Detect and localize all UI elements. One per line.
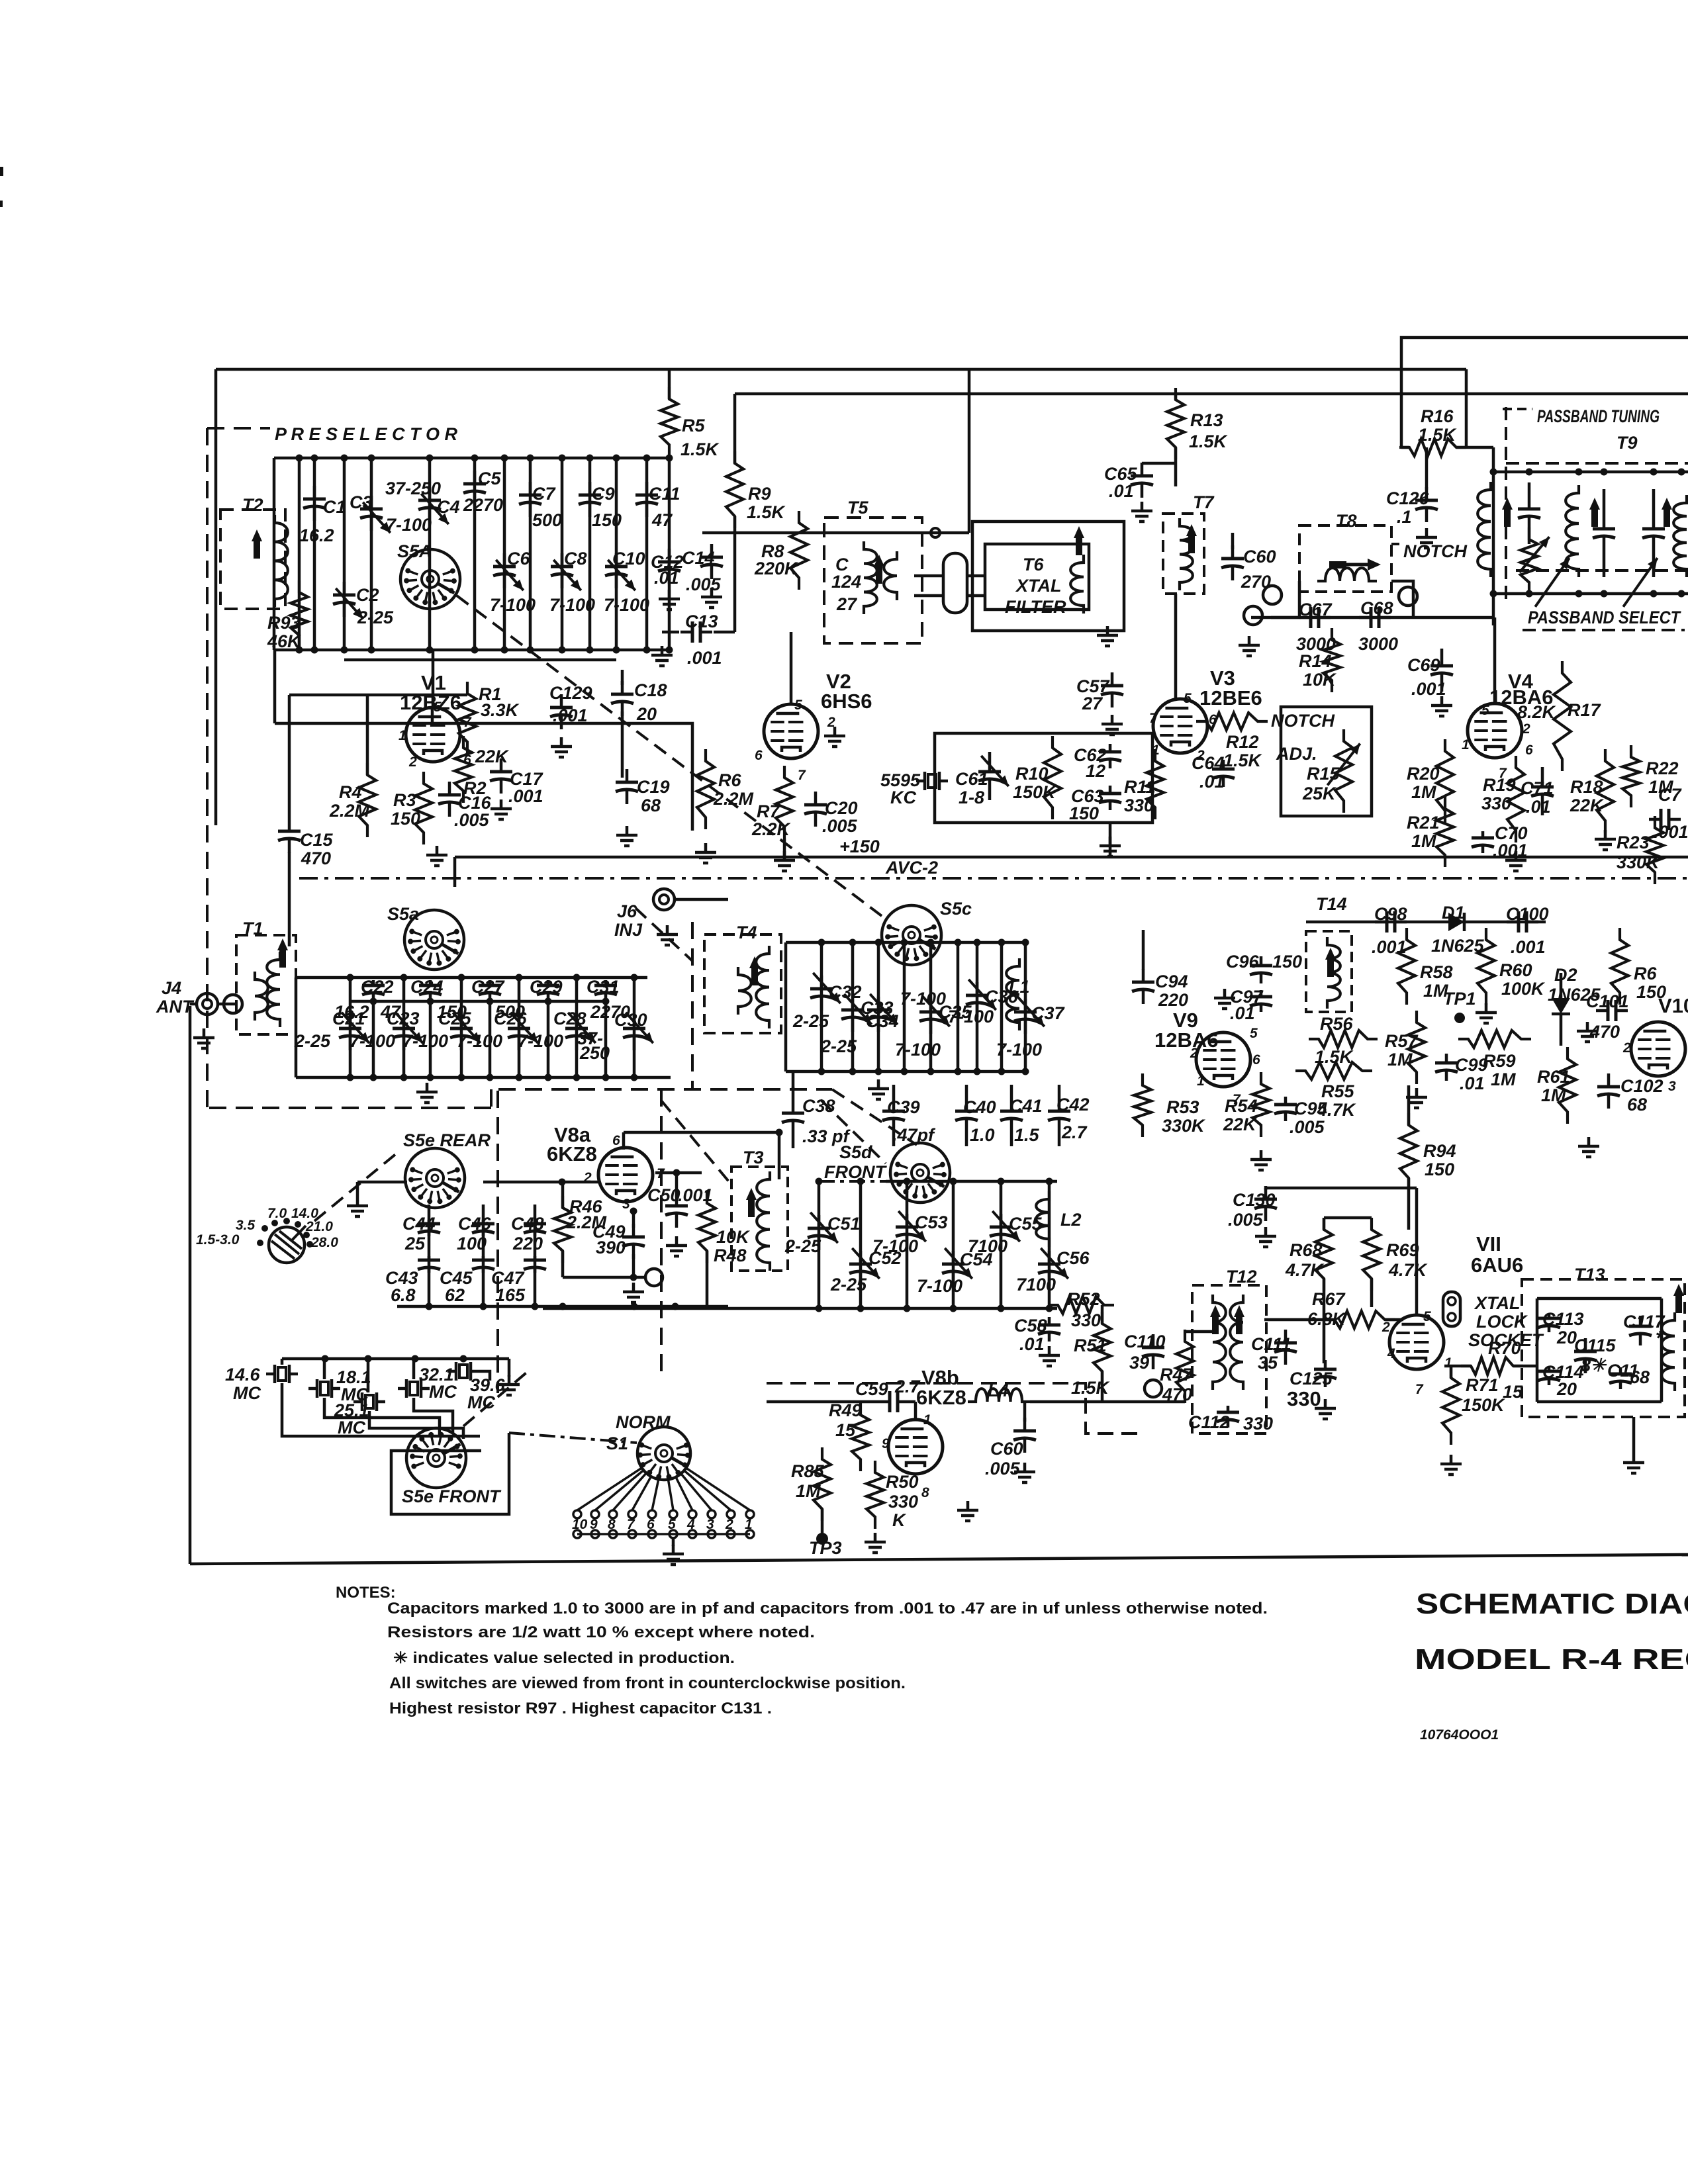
svg-text:1.5K: 1.5K xyxy=(680,439,720,459)
svg-text:R70: R70 xyxy=(1488,1338,1521,1358)
svg-text:R57: R57 xyxy=(1385,1031,1419,1051)
svg-text:C39: C39 xyxy=(887,1097,920,1117)
svg-text:FRONT: FRONT xyxy=(824,1162,887,1182)
svg-text:C19: C19 xyxy=(637,777,670,797)
svg-text:C28: C28 xyxy=(553,1009,586,1028)
svg-text:KC: KC xyxy=(890,788,916,807)
svg-text:.005: .005 xyxy=(1228,1210,1264,1230)
svg-text:2.2M: 2.2M xyxy=(713,789,754,809)
svg-text:Capacitors marked 1.0 to 3: Capacitors marked 1.0 to 3000 are in pf … xyxy=(387,1600,1268,1617)
svg-text:C18: C18 xyxy=(634,680,667,700)
svg-text:21.0: 21.0 xyxy=(305,1219,333,1234)
svg-text:15: 15 xyxy=(1503,1382,1523,1402)
svg-text:C15: C15 xyxy=(300,830,334,850)
svg-text:C32: C32 xyxy=(829,982,862,1002)
svg-text:Resistors are 1/2 watt 1: Resistors are 1/2 watt 10 % except where… xyxy=(387,1623,815,1641)
svg-text:R9: R9 xyxy=(748,484,771,504)
svg-text:330K: 330K xyxy=(1162,1116,1206,1136)
svg-text:3: 3 xyxy=(1668,1079,1676,1094)
svg-text:.001: .001 xyxy=(1654,822,1688,842)
svg-text:C13: C13 xyxy=(685,612,718,631)
svg-text:C102: C102 xyxy=(1620,1076,1664,1096)
svg-text:3: 3 xyxy=(706,1517,714,1532)
svg-text:1.5K: 1.5K xyxy=(1418,425,1458,445)
svg-text:Highest resistor R97 . H: Highest resistor R97 . Highest capacitor… xyxy=(389,1700,772,1717)
svg-text:500: 500 xyxy=(532,510,562,530)
svg-text:C110: C110 xyxy=(1124,1332,1166,1351)
svg-text:7.0: 7.0 xyxy=(267,1206,287,1221)
svg-text:T9: T9 xyxy=(1617,433,1638,453)
svg-text:330: 330 xyxy=(1243,1414,1273,1433)
svg-text:5: 5 xyxy=(794,698,802,713)
svg-text:R53: R53 xyxy=(1166,1097,1199,1117)
svg-text:C51: C51 xyxy=(827,1214,861,1234)
svg-text:R3: R3 xyxy=(393,790,416,810)
svg-text:5: 5 xyxy=(434,700,442,715)
svg-text:12BE6: 12BE6 xyxy=(1199,686,1262,709)
svg-text:C9: C9 xyxy=(592,484,615,504)
svg-text:150: 150 xyxy=(391,809,420,829)
svg-text:D1: D1 xyxy=(1442,903,1465,923)
svg-text:R85: R85 xyxy=(791,1461,825,1481)
svg-text:MC: MC xyxy=(338,1418,365,1437)
svg-text:6.8: 6.8 xyxy=(391,1285,416,1305)
svg-text:J6: J6 xyxy=(617,901,637,921)
svg-text:390: 390 xyxy=(596,1238,626,1257)
svg-text:C4: C4 xyxy=(437,497,460,517)
svg-text:100K: 100K xyxy=(1501,979,1546,999)
svg-text:.1: .1 xyxy=(1397,507,1412,527)
svg-text:MODEL R-4 RECEIVER: MODEL R-4 RECEIVER xyxy=(1415,1643,1688,1676)
svg-text:✳ indicates value selected: ✳ indicates value selected in production… xyxy=(393,1649,735,1667)
svg-text:12BA6: 12BA6 xyxy=(1154,1028,1219,1052)
svg-text:330K: 330K xyxy=(1617,852,1661,872)
svg-text:C6: C6 xyxy=(507,549,530,569)
svg-text:R94: R94 xyxy=(1423,1141,1456,1161)
svg-text:R58: R58 xyxy=(1420,962,1453,982)
svg-text:7-100: 7-100 xyxy=(604,595,649,615)
svg-text:3000: 3000 xyxy=(1358,634,1398,654)
svg-text:C48: C48 xyxy=(511,1214,544,1234)
svg-text:XTAL: XTAL xyxy=(1015,576,1062,596)
svg-text:3: 3 xyxy=(622,1197,630,1212)
svg-text:All switches are viewed fr: All switches are viewed from front in co… xyxy=(389,1674,906,1692)
svg-text:3.3K: 3.3K xyxy=(481,700,520,720)
svg-text:2-25: 2-25 xyxy=(357,608,394,627)
svg-text:S5A: S5A xyxy=(397,541,432,561)
svg-text:4.7K: 4.7K xyxy=(1388,1260,1429,1280)
svg-text:4: 4 xyxy=(1387,1346,1395,1361)
svg-text:R61: R61 xyxy=(1537,1067,1570,1087)
svg-text:C37: C37 xyxy=(1031,1003,1066,1023)
svg-text:1: 1 xyxy=(399,728,406,743)
svg-text:TP3: TP3 xyxy=(809,1538,842,1558)
svg-text:S5c: S5c xyxy=(940,899,972,919)
svg-text:7-100: 7-100 xyxy=(490,595,536,615)
svg-text:2: 2 xyxy=(1522,721,1530,737)
svg-text:25K: 25K xyxy=(1302,784,1337,803)
svg-text:R47: R47 xyxy=(1160,1365,1194,1385)
svg-text:20: 20 xyxy=(1556,1379,1577,1399)
svg-text:S5e FRONT: S5e FRONT xyxy=(402,1486,502,1506)
svg-text:10K: 10K xyxy=(716,1227,751,1247)
svg-text:220: 220 xyxy=(1158,990,1188,1010)
svg-text:R69: R69 xyxy=(1386,1240,1419,1260)
svg-text:V10: V10 xyxy=(1658,994,1688,1017)
svg-text:.005: .005 xyxy=(1289,1117,1325,1137)
svg-text:150: 150 xyxy=(1425,1160,1454,1179)
svg-text:SCHEMATIC DIAGRAM: SCHEMATIC DIAGRAM xyxy=(1416,1588,1688,1620)
svg-text:1M: 1M xyxy=(796,1481,821,1501)
svg-text:6: 6 xyxy=(647,1517,655,1532)
svg-text:+150: +150 xyxy=(839,837,880,856)
svg-text:R56: R56 xyxy=(1320,1014,1354,1034)
svg-text:R5: R5 xyxy=(682,416,705,435)
svg-text:C2: C2 xyxy=(356,585,379,605)
svg-text:150: 150 xyxy=(1069,803,1099,823)
svg-text:R49: R49 xyxy=(829,1400,862,1420)
svg-text:T14: T14 xyxy=(1316,894,1347,914)
svg-text:T5: T5 xyxy=(847,498,868,518)
svg-text:.001: .001 xyxy=(1411,679,1446,699)
svg-text:C34: C34 xyxy=(866,1011,899,1031)
svg-text:7-100: 7-100 xyxy=(549,595,595,615)
svg-text:.005: .005 xyxy=(686,574,722,594)
svg-text:28.0: 28.0 xyxy=(310,1235,338,1250)
svg-text:T12: T12 xyxy=(1226,1267,1257,1287)
svg-text:10764OOO1: 10764OOO1 xyxy=(1420,1727,1499,1743)
svg-text:C11: C11 xyxy=(649,484,680,504)
svg-text:T8: T8 xyxy=(1336,511,1357,531)
svg-text:C20: C20 xyxy=(825,798,858,818)
svg-text:5: 5 xyxy=(1481,703,1489,718)
svg-text:165: 165 xyxy=(495,1285,526,1305)
svg-text:C10: C10 xyxy=(612,549,645,569)
svg-text:C100: C100 xyxy=(1506,904,1549,924)
svg-text:2-25: 2-25 xyxy=(830,1275,867,1295)
svg-text:7-100: 7-100 xyxy=(518,1031,563,1051)
svg-text:1M: 1M xyxy=(1491,1069,1516,1089)
svg-text:.01: .01 xyxy=(654,568,679,588)
svg-text:R14: R14 xyxy=(1299,651,1332,671)
svg-text:C38: C38 xyxy=(802,1096,835,1116)
svg-text:R11: R11 xyxy=(1124,777,1156,797)
svg-text:2: 2 xyxy=(1382,1320,1390,1335)
svg-text:R50: R50 xyxy=(886,1472,919,1492)
svg-text:R52: R52 xyxy=(1067,1289,1100,1309)
svg-text:MC: MC xyxy=(429,1382,457,1402)
svg-text:1-8: 1-8 xyxy=(959,788,984,807)
svg-text:35: 35 xyxy=(1258,1353,1278,1373)
svg-text:5: 5 xyxy=(1250,1026,1258,1041)
svg-text:330: 330 xyxy=(1481,794,1511,813)
svg-text:R20: R20 xyxy=(1407,764,1440,784)
svg-text:C113: C113 xyxy=(1542,1309,1584,1329)
svg-text:C44: C44 xyxy=(402,1214,436,1234)
svg-text:1: 1 xyxy=(745,1517,753,1532)
svg-text:C94: C94 xyxy=(1155,972,1188,991)
svg-text:27: 27 xyxy=(836,594,858,614)
svg-text:2.7: 2.7 xyxy=(894,1377,921,1396)
svg-text:NOTCH: NOTCH xyxy=(1271,711,1335,731)
svg-text:150: 150 xyxy=(1272,952,1302,972)
svg-text:5: 5 xyxy=(1423,1309,1431,1324)
svg-text:6KZ8: 6KZ8 xyxy=(547,1142,597,1165)
svg-text:.01: .01 xyxy=(1526,797,1551,817)
svg-text:R55: R55 xyxy=(1321,1081,1355,1101)
svg-text:22K: 22K xyxy=(1570,796,1605,815)
svg-text:C101: C101 xyxy=(1586,991,1629,1011)
svg-text:NOTES:: NOTES: xyxy=(336,1584,396,1602)
svg-text:.001: .001 xyxy=(1511,937,1546,957)
svg-text:22K: 22K xyxy=(1223,1115,1258,1134)
svg-text:S5e REAR: S5e REAR xyxy=(403,1130,491,1150)
svg-text:1: 1 xyxy=(1462,737,1470,752)
svg-text:10K: 10K xyxy=(1303,670,1337,690)
svg-text:C54: C54 xyxy=(960,1250,993,1269)
svg-text:C26: C26 xyxy=(494,1009,528,1028)
svg-text:7-100: 7-100 xyxy=(386,515,432,535)
svg-text:.001: .001 xyxy=(687,648,722,668)
svg-text:.47pf: .47pf xyxy=(892,1125,936,1145)
svg-text:3.5: 3.5 xyxy=(236,1218,256,1233)
svg-text:MC: MC xyxy=(467,1392,495,1412)
svg-text:R59: R59 xyxy=(1483,1051,1516,1071)
svg-text:C42: C42 xyxy=(1056,1095,1090,1115)
svg-text:470: 470 xyxy=(301,848,331,868)
svg-text:C30: C30 xyxy=(614,1010,647,1030)
svg-text:.01: .01 xyxy=(1019,1334,1045,1354)
svg-text:C67: C67 xyxy=(1299,600,1333,619)
svg-text:100: 100 xyxy=(457,1234,487,1253)
svg-text:4: 4 xyxy=(686,1517,695,1532)
svg-text:9: 9 xyxy=(882,1436,890,1451)
svg-text:T13: T13 xyxy=(1574,1265,1605,1285)
svg-text:C115: C115 xyxy=(1574,1336,1617,1355)
svg-text:124: 124 xyxy=(831,572,861,592)
svg-text:8: 8 xyxy=(608,1517,616,1532)
svg-text:.001: .001 xyxy=(508,786,543,806)
svg-text:T7: T7 xyxy=(1193,492,1215,512)
svg-text:7100: 7100 xyxy=(1016,1275,1056,1295)
svg-text:14.6: 14.6 xyxy=(225,1365,261,1385)
svg-text:7-100: 7-100 xyxy=(948,1007,994,1026)
svg-text:.005: .005 xyxy=(822,816,858,836)
svg-text:R68: R68 xyxy=(1289,1240,1323,1260)
svg-text:4.7K: 4.7K xyxy=(1317,1100,1357,1120)
svg-text:C14: C14 xyxy=(682,548,715,568)
svg-text:C1: C1 xyxy=(323,497,346,517)
svg-text:2-25: 2-25 xyxy=(820,1036,857,1056)
svg-text:D2: D2 xyxy=(1554,965,1577,985)
svg-text:R4: R4 xyxy=(339,782,362,802)
svg-text:220: 220 xyxy=(512,1234,543,1253)
svg-text:1: 1 xyxy=(923,1412,931,1428)
svg-text:R22: R22 xyxy=(1646,758,1679,778)
svg-text:FILTER: FILTER xyxy=(1005,597,1066,617)
svg-text:INJ: INJ xyxy=(614,920,643,940)
svg-text:68: 68 xyxy=(641,796,661,815)
svg-text:20: 20 xyxy=(636,704,657,724)
svg-text:C52: C52 xyxy=(868,1248,902,1268)
svg-text:2-25: 2-25 xyxy=(784,1236,821,1256)
svg-text:68: 68 xyxy=(1627,1095,1647,1115)
svg-text:R16: R16 xyxy=(1421,406,1454,426)
svg-text:R17: R17 xyxy=(1568,700,1602,720)
svg-text:39: 39 xyxy=(1129,1353,1149,1373)
svg-text:R6: R6 xyxy=(1634,964,1657,983)
svg-text:1M: 1M xyxy=(1541,1085,1566,1105)
svg-text:1.5K: 1.5K xyxy=(1189,432,1229,451)
svg-text:C112: C112 xyxy=(1188,1412,1230,1432)
svg-text:C71: C71 xyxy=(1521,778,1554,798)
svg-text:12: 12 xyxy=(1086,761,1105,781)
svg-text:R54: R54 xyxy=(1225,1096,1258,1116)
svg-text:R10: R10 xyxy=(1015,764,1049,784)
svg-text:C130: C130 xyxy=(1233,1190,1276,1210)
svg-text:S5d: S5d xyxy=(839,1142,872,1162)
svg-text:330: 330 xyxy=(1124,796,1154,815)
svg-text:C58: C58 xyxy=(1014,1316,1047,1336)
svg-text:C22: C22 xyxy=(361,977,394,997)
svg-text:C56: C56 xyxy=(1056,1248,1090,1268)
svg-text:5: 5 xyxy=(1184,691,1192,706)
svg-text:R67: R67 xyxy=(1312,1289,1346,1309)
svg-text:2.2M: 2.2M xyxy=(329,801,370,821)
svg-text:7-100: 7-100 xyxy=(350,1031,395,1051)
svg-text:C31: C31 xyxy=(586,977,620,997)
svg-text:1.5K: 1.5K xyxy=(1071,1378,1111,1398)
svg-text:C61: C61 xyxy=(955,769,988,789)
svg-text:1.5: 1.5 xyxy=(1014,1125,1040,1145)
svg-text:C21: C21 xyxy=(332,1009,365,1028)
svg-text:C126: C126 xyxy=(1386,488,1430,508)
svg-text:R60: R60 xyxy=(1499,960,1532,980)
svg-text:250: 250 xyxy=(579,1043,610,1063)
svg-text:VII: VII xyxy=(1476,1232,1501,1255)
svg-text:R18: R18 xyxy=(1570,777,1603,797)
svg-text:25: 25 xyxy=(404,1234,426,1253)
svg-text:.001: .001 xyxy=(1493,841,1528,860)
svg-text:ADJ.: ADJ. xyxy=(1276,744,1317,764)
svg-text:P R E S E L E C T O R: P R E S E L E C T O R xyxy=(275,424,458,444)
svg-text:150K: 150K xyxy=(1013,782,1057,802)
svg-text:C68: C68 xyxy=(1360,598,1393,618)
svg-text:7-100: 7-100 xyxy=(917,1276,962,1296)
svg-text:37-250: 37-250 xyxy=(385,478,441,498)
svg-text:PASSBAND TUNING: PASSBAND TUNING xyxy=(1537,406,1660,426)
svg-text:.01: .01 xyxy=(1109,481,1134,501)
svg-text:.01: .01 xyxy=(1460,1073,1485,1093)
svg-text:46K: 46K xyxy=(267,631,302,651)
svg-text:R7: R7 xyxy=(757,801,780,821)
svg-text:8✳: 8✳ xyxy=(1581,1355,1607,1375)
svg-text:7-100: 7-100 xyxy=(996,1040,1042,1060)
svg-text:K: K xyxy=(892,1510,907,1530)
svg-text:2: 2 xyxy=(725,1517,733,1532)
svg-text:C8: C8 xyxy=(564,549,587,569)
svg-text:2270: 2270 xyxy=(463,495,503,515)
svg-text:R93: R93 xyxy=(267,613,301,633)
svg-text:7: 7 xyxy=(1149,711,1158,726)
svg-text:6HS6: 6HS6 xyxy=(821,690,872,713)
svg-text:R48: R48 xyxy=(714,1246,747,1265)
svg-text:C23: C23 xyxy=(387,1009,420,1028)
svg-text:2-25: 2-25 xyxy=(792,1011,829,1031)
svg-text:C5: C5 xyxy=(478,469,501,488)
svg-text:C27: C27 xyxy=(471,977,506,997)
svg-text:C96: C96 xyxy=(1226,952,1260,972)
svg-text:T6: T6 xyxy=(1023,555,1044,574)
svg-text:S5a: S5a xyxy=(387,904,419,924)
svg-text:R23: R23 xyxy=(1617,833,1650,852)
svg-text:5: 5 xyxy=(668,1517,676,1532)
svg-text:1M: 1M xyxy=(1411,782,1436,802)
svg-text:2-25: 2-25 xyxy=(294,1031,331,1051)
svg-text:1.5-3.0: 1.5-3.0 xyxy=(196,1232,240,1248)
svg-text:MC: MC xyxy=(233,1383,261,1403)
svg-text:AVC-2: AVC-2 xyxy=(885,858,938,878)
svg-text:R21: R21 xyxy=(1407,813,1440,833)
svg-text:C7: C7 xyxy=(532,484,556,504)
svg-text:220K: 220K xyxy=(754,559,799,578)
svg-text:6: 6 xyxy=(612,1133,620,1148)
svg-text:2: 2 xyxy=(1190,1046,1198,1061)
svg-text:6: 6 xyxy=(755,748,763,763)
svg-text:S1: S1 xyxy=(606,1433,628,1453)
svg-text:150K: 150K xyxy=(1462,1395,1506,1415)
svg-text:1.5K: 1.5K xyxy=(747,502,786,522)
svg-text:47: 47 xyxy=(651,510,673,530)
svg-text:C7: C7 xyxy=(1658,785,1682,805)
svg-text:27: 27 xyxy=(1082,694,1103,713)
svg-text:2: 2 xyxy=(1622,1040,1631,1056)
svg-text:C40: C40 xyxy=(963,1097,996,1117)
svg-text:R13: R13 xyxy=(1190,410,1223,430)
svg-text:6: 6 xyxy=(1252,1052,1260,1068)
svg-text:C129: C129 xyxy=(549,683,592,703)
svg-text:C41: C41 xyxy=(1009,1096,1043,1116)
svg-text:10: 10 xyxy=(572,1517,588,1532)
svg-text:8: 8 xyxy=(921,1485,929,1500)
svg-text:T3: T3 xyxy=(743,1148,764,1167)
svg-text:PASSBAND SELECT: PASSBAND SELECT xyxy=(1528,608,1681,627)
svg-text:XTAL: XTAL xyxy=(1474,1293,1521,1313)
svg-text:.005: .005 xyxy=(454,810,490,830)
svg-text:1.0: 1.0 xyxy=(970,1125,995,1145)
svg-text:9: 9 xyxy=(590,1517,598,1532)
svg-text:C25: C25 xyxy=(438,1009,472,1028)
svg-text:7-100: 7-100 xyxy=(895,1040,941,1060)
svg-text:C53: C53 xyxy=(915,1212,948,1232)
svg-text:6KZ8: 6KZ8 xyxy=(916,1386,966,1409)
svg-text:8.2K: 8.2K xyxy=(1517,702,1557,722)
svg-text:22K: 22K xyxy=(475,747,510,766)
svg-text:C24: C24 xyxy=(410,977,444,997)
svg-text:7-100: 7-100 xyxy=(402,1031,448,1051)
svg-text:6: 6 xyxy=(1525,743,1533,758)
svg-text:T1: T1 xyxy=(242,919,263,938)
svg-text:R6: R6 xyxy=(718,770,741,790)
svg-text:C60: C60 xyxy=(990,1439,1023,1459)
svg-text:62: 62 xyxy=(445,1285,465,1305)
svg-text:.01: .01 xyxy=(1230,1003,1255,1023)
svg-text:C111: C111 xyxy=(1251,1334,1291,1354)
svg-text:C46: C46 xyxy=(458,1214,492,1234)
svg-text:R51: R51 xyxy=(1074,1336,1107,1355)
svg-text:2.7: 2.7 xyxy=(1061,1122,1088,1142)
svg-text:C125: C125 xyxy=(1289,1369,1333,1388)
